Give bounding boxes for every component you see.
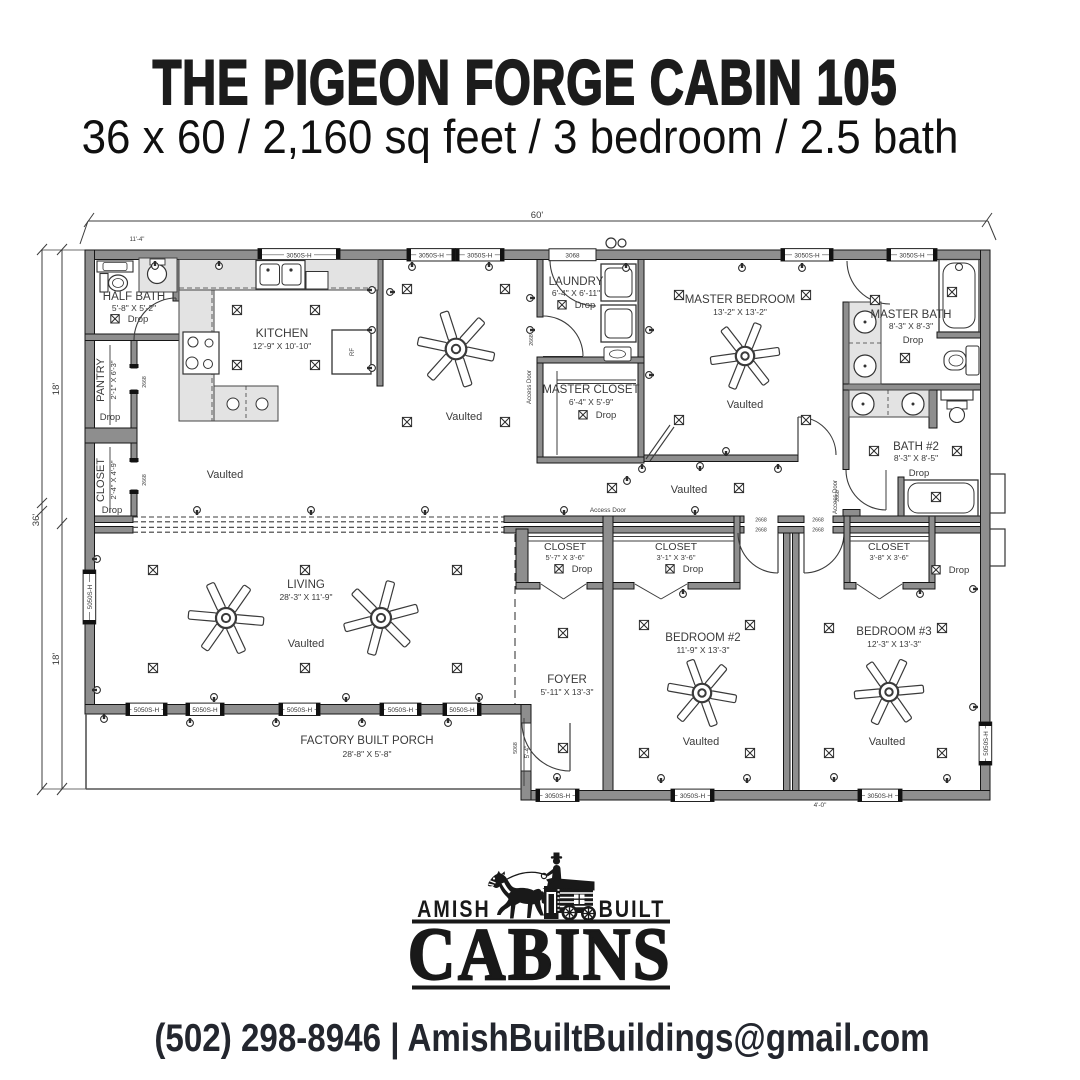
- svg-text:36': 36': [31, 514, 42, 527]
- svg-text:18': 18': [51, 383, 62, 396]
- svg-text:3'-8" X 3'-6": 3'-8" X 3'-6": [869, 553, 908, 562]
- svg-text:28'-3" X 11'-9": 28'-3" X 11'-9": [279, 592, 332, 602]
- svg-text:2668: 2668: [142, 474, 148, 486]
- svg-text:3050S-H: 3050S-H: [286, 252, 312, 259]
- svg-text:Access Door: Access Door: [590, 507, 627, 514]
- svg-text:Drop: Drop: [128, 314, 149, 325]
- svg-text:CLOSET: CLOSET: [655, 541, 698, 553]
- svg-text:Vaulted: Vaulted: [683, 736, 720, 748]
- svg-text:5068: 5068: [513, 742, 519, 754]
- svg-text:3050S-H: 3050S-H: [867, 793, 893, 800]
- svg-text:CLOSET: CLOSET: [868, 541, 911, 553]
- svg-text:LAUNDRY: LAUNDRY: [549, 276, 604, 288]
- svg-text:KITCHEN: KITCHEN: [256, 326, 309, 340]
- svg-text:5'-11" X 13'-3": 5'-11" X 13'-3": [540, 687, 593, 697]
- svg-text:BATH #2: BATH #2: [893, 441, 939, 453]
- svg-text:2668: 2668: [812, 518, 824, 524]
- svg-text:3050S-H: 3050S-H: [467, 252, 493, 259]
- svg-text:11'-4": 11'-4": [130, 237, 145, 243]
- svg-text:Drop: Drop: [572, 564, 593, 575]
- svg-text:12'-9" X 10'-10": 12'-9" X 10'-10": [253, 341, 311, 351]
- svg-text:2668: 2668: [755, 518, 767, 524]
- svg-text:FACTORY BUILT PORCH: FACTORY BUILT PORCH: [300, 735, 433, 747]
- svg-text:6'-4" X 5'-9": 6'-4" X 5'-9": [569, 397, 613, 407]
- svg-text:THE PIGEON FORGE CABIN 105: THE PIGEON FORGE CABIN 105: [153, 47, 898, 117]
- svg-text:60': 60': [531, 210, 544, 221]
- svg-text:Drop: Drop: [100, 412, 121, 423]
- svg-text:Vaulted: Vaulted: [727, 399, 764, 411]
- svg-text:5050S-H: 5050S-H: [87, 585, 94, 609]
- svg-text:MASTER BATH: MASTER BATH: [871, 309, 952, 321]
- svg-text:LIVING: LIVING: [287, 579, 325, 591]
- svg-text:BEDROOM #3: BEDROOM #3: [856, 626, 931, 638]
- svg-text:Drop: Drop: [683, 564, 704, 575]
- svg-text:8'-3" X 8'-3": 8'-3" X 8'-3": [889, 321, 933, 331]
- svg-text:5050S-H: 5050S-H: [192, 707, 218, 714]
- svg-text:Drop: Drop: [903, 335, 924, 346]
- svg-text:Access Door: Access Door: [833, 480, 839, 514]
- svg-text:5050S-H: 5050S-H: [983, 731, 990, 755]
- svg-text:13'-2" X 13'-2": 13'-2" X 13'-2": [713, 307, 767, 317]
- svg-text:5'-7" X 3'-6": 5'-7" X 3'-6": [545, 553, 584, 562]
- svg-text:2668: 2668: [755, 528, 767, 534]
- svg-text:8'-3" X 8'-5": 8'-3" X 8'-5": [894, 453, 938, 463]
- svg-text:5050S-H: 5050S-H: [287, 707, 313, 714]
- svg-text:Vaulted: Vaulted: [207, 469, 244, 481]
- svg-text:36 x 60 / 2,160 sq feet / 3 be: 36 x 60 / 2,160 sq feet / 3 bedroom / 2.…: [82, 111, 959, 164]
- svg-text:FOYER: FOYER: [547, 674, 587, 686]
- svg-text:MASTER CLOSET: MASTER CLOSET: [542, 384, 639, 396]
- svg-text:3050S-H: 3050S-H: [680, 793, 706, 800]
- svg-text:(502) 298-8946 | AmishBuiltBui: (502) 298-8946 | AmishBuiltBuildings@gma…: [154, 1015, 929, 1060]
- svg-text:Drop: Drop: [575, 300, 596, 311]
- svg-text:Drop: Drop: [102, 505, 123, 516]
- svg-text:12'-3" X 13'-3": 12'-3" X 13'-3": [867, 639, 921, 649]
- svg-text:PANTRY: PANTRY: [95, 358, 107, 402]
- svg-text:3050S-H: 3050S-H: [899, 252, 925, 259]
- svg-text:Vaulted: Vaulted: [671, 484, 708, 496]
- svg-text:CLOSET: CLOSET: [95, 458, 107, 502]
- svg-text:Vaulted: Vaulted: [446, 411, 483, 423]
- svg-text:2'-4" X 4'-9": 2'-4" X 4'-9": [109, 460, 118, 499]
- svg-text:HALF BATH: HALF BATH: [103, 291, 165, 303]
- svg-text:3'-1" X 3'-6": 3'-1" X 3'-6": [656, 553, 695, 562]
- svg-text:3050S-H: 3050S-H: [545, 793, 571, 800]
- svg-text:CLOSET: CLOSET: [544, 541, 587, 553]
- svg-text:Vaulted: Vaulted: [288, 638, 325, 650]
- svg-text:Access Door: Access Door: [527, 370, 533, 404]
- svg-text:Drop: Drop: [596, 410, 617, 421]
- svg-text:Drop: Drop: [909, 468, 930, 479]
- svg-text:Drop: Drop: [949, 565, 970, 576]
- svg-text:5050S-H: 5050S-H: [388, 707, 414, 714]
- svg-text:2668: 2668: [529, 334, 535, 346]
- svg-text:4'-0": 4'-0": [814, 802, 827, 809]
- svg-text:2668: 2668: [142, 376, 148, 388]
- svg-text:5050S-H: 5050S-H: [449, 707, 475, 714]
- svg-text:5'-8" X 5'-2": 5'-8" X 5'-2": [112, 303, 156, 313]
- svg-text:Vaulted: Vaulted: [869, 736, 906, 748]
- svg-text:5'-4": 5'-4": [524, 746, 531, 759]
- svg-text:11'-9" X 13'-3": 11'-9" X 13'-3": [676, 645, 729, 655]
- svg-text:18': 18': [51, 653, 62, 666]
- svg-text:5050S-H: 5050S-H: [134, 707, 160, 714]
- svg-text:3050S-H: 3050S-H: [419, 252, 445, 259]
- svg-text:2668: 2668: [812, 528, 824, 534]
- svg-text:RF: RF: [350, 348, 356, 356]
- svg-text:3068: 3068: [565, 253, 580, 260]
- svg-text:28'-8" X 5'-8": 28'-8" X 5'-8": [343, 749, 392, 759]
- svg-text:6'-4" X 6'-11": 6'-4" X 6'-11": [552, 288, 600, 298]
- svg-text:3050S-H: 3050S-H: [794, 252, 820, 259]
- svg-text:MASTER BEDROOM: MASTER BEDROOM: [685, 294, 796, 306]
- svg-text:2'-1" X 6'-3": 2'-1" X 6'-3": [109, 360, 118, 399]
- svg-text:CABINS: CABINS: [408, 914, 672, 995]
- svg-text:BEDROOM #2: BEDROOM #2: [665, 632, 740, 644]
